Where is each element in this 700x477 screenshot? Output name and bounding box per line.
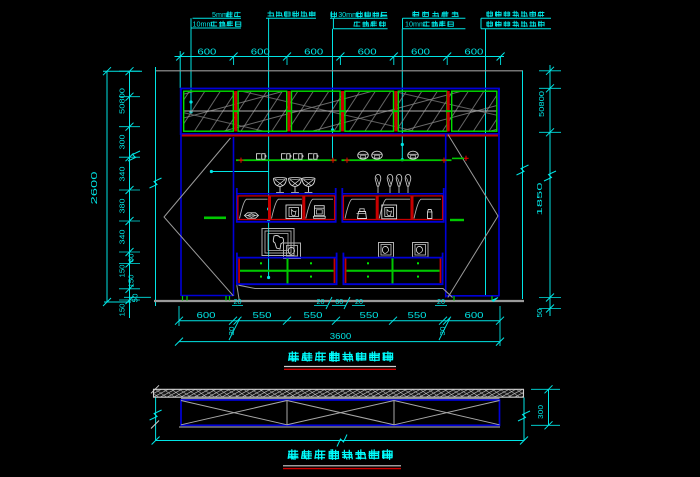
svg-text:60: 60 [335, 297, 343, 306]
svg-text:600: 600 [411, 48, 431, 57]
svg-text:20: 20 [355, 297, 363, 306]
svg-text:600: 600 [197, 48, 217, 57]
svg-text:600: 600 [465, 311, 485, 320]
svg-text:60: 60 [127, 254, 136, 263]
svg-text:600: 600 [358, 48, 378, 57]
svg-text:600: 600 [197, 311, 217, 320]
svg-text:20: 20 [234, 297, 242, 306]
svg-text:340: 340 [118, 230, 127, 245]
svg-text:10mm: 10mm [193, 20, 213, 29]
svg-text:150: 150 [118, 304, 127, 317]
svg-text:600: 600 [251, 48, 271, 57]
svg-text:380: 380 [118, 199, 127, 214]
svg-text:30mm: 30mm [338, 10, 358, 19]
svg-text:5mm: 5mm [212, 10, 228, 19]
svg-text:20: 20 [317, 297, 325, 306]
svg-text:1850: 1850 [535, 183, 544, 216]
svg-text:50800: 50800 [118, 88, 127, 114]
svg-text:550: 550 [360, 311, 380, 320]
svg-text:50800: 50800 [537, 91, 546, 117]
svg-text:30: 30 [438, 327, 447, 336]
svg-text:600: 600 [464, 48, 484, 57]
svg-text:600: 600 [304, 48, 324, 57]
svg-text:2600: 2600 [90, 170, 99, 204]
svg-text:300: 300 [536, 405, 545, 419]
svg-text:300: 300 [118, 135, 127, 150]
svg-text:150: 150 [127, 275, 136, 288]
svg-text:550: 550 [304, 311, 324, 320]
svg-text:550: 550 [253, 311, 273, 320]
svg-text:550: 550 [408, 311, 428, 320]
svg-text:20: 20 [437, 297, 445, 306]
svg-text:3600: 3600 [330, 332, 352, 341]
svg-text:50: 50 [131, 294, 140, 303]
svg-text:150: 150 [118, 265, 127, 278]
svg-text:50: 50 [535, 309, 544, 318]
svg-text:10mm: 10mm [405, 20, 425, 29]
svg-text:340: 340 [118, 167, 127, 182]
